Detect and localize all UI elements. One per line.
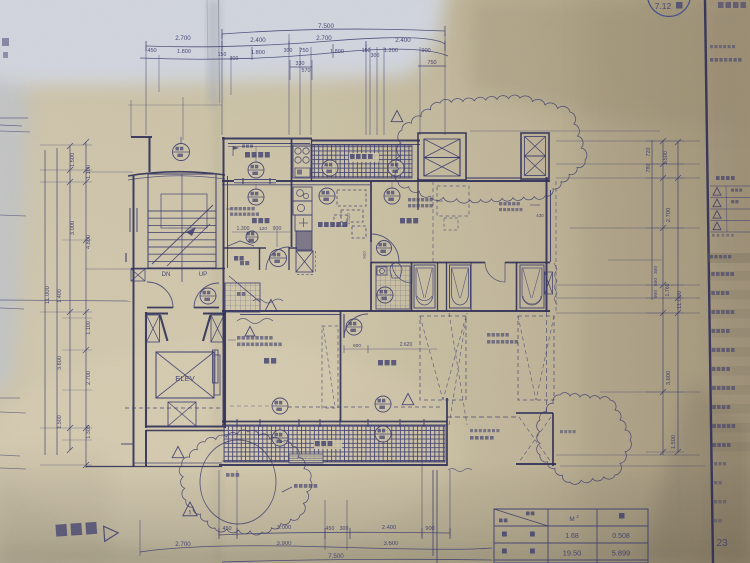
svg-text:1.500: 1.500 xyxy=(671,435,677,449)
svg-text:300: 300 xyxy=(284,48,293,54)
svg-text:1.800: 1.800 xyxy=(330,49,344,55)
svg-text:3.000: 3.000 xyxy=(70,221,76,236)
svg-text:450: 450 xyxy=(147,48,156,54)
svg-text:750: 750 xyxy=(299,48,308,54)
svg-text:1.500: 1.500 xyxy=(70,153,76,168)
svg-text:1.800: 1.800 xyxy=(177,49,191,55)
svg-text:570: 570 xyxy=(302,68,311,74)
svg-text:0.508: 0.508 xyxy=(612,533,630,540)
svg-text:1.500: 1.500 xyxy=(57,415,63,429)
svg-text:3.600: 3.600 xyxy=(57,356,63,370)
svg-text:1.200: 1.200 xyxy=(346,213,351,225)
svg-text:450: 450 xyxy=(326,526,335,532)
svg-text:2.400: 2.400 xyxy=(395,37,411,44)
svg-text:3.600: 3.600 xyxy=(666,371,672,386)
svg-text:900: 900 xyxy=(653,290,659,298)
svg-text:5: 5 xyxy=(189,510,192,516)
svg-text:UP: UP xyxy=(199,271,208,278)
svg-text:1.100: 1.100 xyxy=(86,321,92,335)
svg-text:2.700: 2.700 xyxy=(175,541,191,548)
svg-text:1.200: 1.200 xyxy=(384,48,398,54)
svg-text:300: 300 xyxy=(653,266,659,274)
svg-text:900: 900 xyxy=(421,48,430,54)
svg-text:1.300: 1.300 xyxy=(237,226,250,232)
svg-text:7.12: 7.12 xyxy=(655,1,672,11)
svg-text:2.700: 2.700 xyxy=(666,208,672,223)
svg-text:2.700: 2.700 xyxy=(86,371,92,385)
svg-text:2.400: 2.400 xyxy=(382,525,397,531)
svg-text:1.68: 1.68 xyxy=(565,533,579,540)
svg-text:120: 120 xyxy=(259,226,267,232)
svg-text:M: M xyxy=(569,516,574,523)
svg-text:900: 900 xyxy=(362,251,367,259)
svg-text:19.50: 19.50 xyxy=(563,549,582,558)
svg-text:720: 720 xyxy=(646,148,652,157)
svg-text:3.600: 3.600 xyxy=(383,541,399,547)
svg-text:ELEV: ELEV xyxy=(175,374,195,383)
svg-text:2.700: 2.700 xyxy=(175,35,191,42)
svg-text:430: 430 xyxy=(536,213,544,218)
svg-text:7.500: 7.500 xyxy=(328,553,344,560)
svg-text:2.700: 2.700 xyxy=(316,35,332,42)
svg-text:DN: DN xyxy=(162,271,171,278)
svg-text:780: 780 xyxy=(646,164,652,173)
svg-text:1.760: 1.760 xyxy=(665,283,671,296)
svg-text:2.400: 2.400 xyxy=(250,37,266,44)
svg-text:5.899: 5.899 xyxy=(612,549,631,558)
svg-text:11.000: 11.000 xyxy=(677,290,683,309)
svg-text:750: 750 xyxy=(427,60,436,66)
svg-text:11.000: 11.000 xyxy=(45,285,51,304)
svg-text:300: 300 xyxy=(371,53,380,59)
svg-text:600: 600 xyxy=(353,343,361,349)
svg-text:1.800: 1.800 xyxy=(251,50,265,56)
svg-text:2.620: 2.620 xyxy=(400,342,413,348)
svg-text:23: 23 xyxy=(716,538,728,549)
svg-text:3.900: 3.900 xyxy=(276,541,292,547)
